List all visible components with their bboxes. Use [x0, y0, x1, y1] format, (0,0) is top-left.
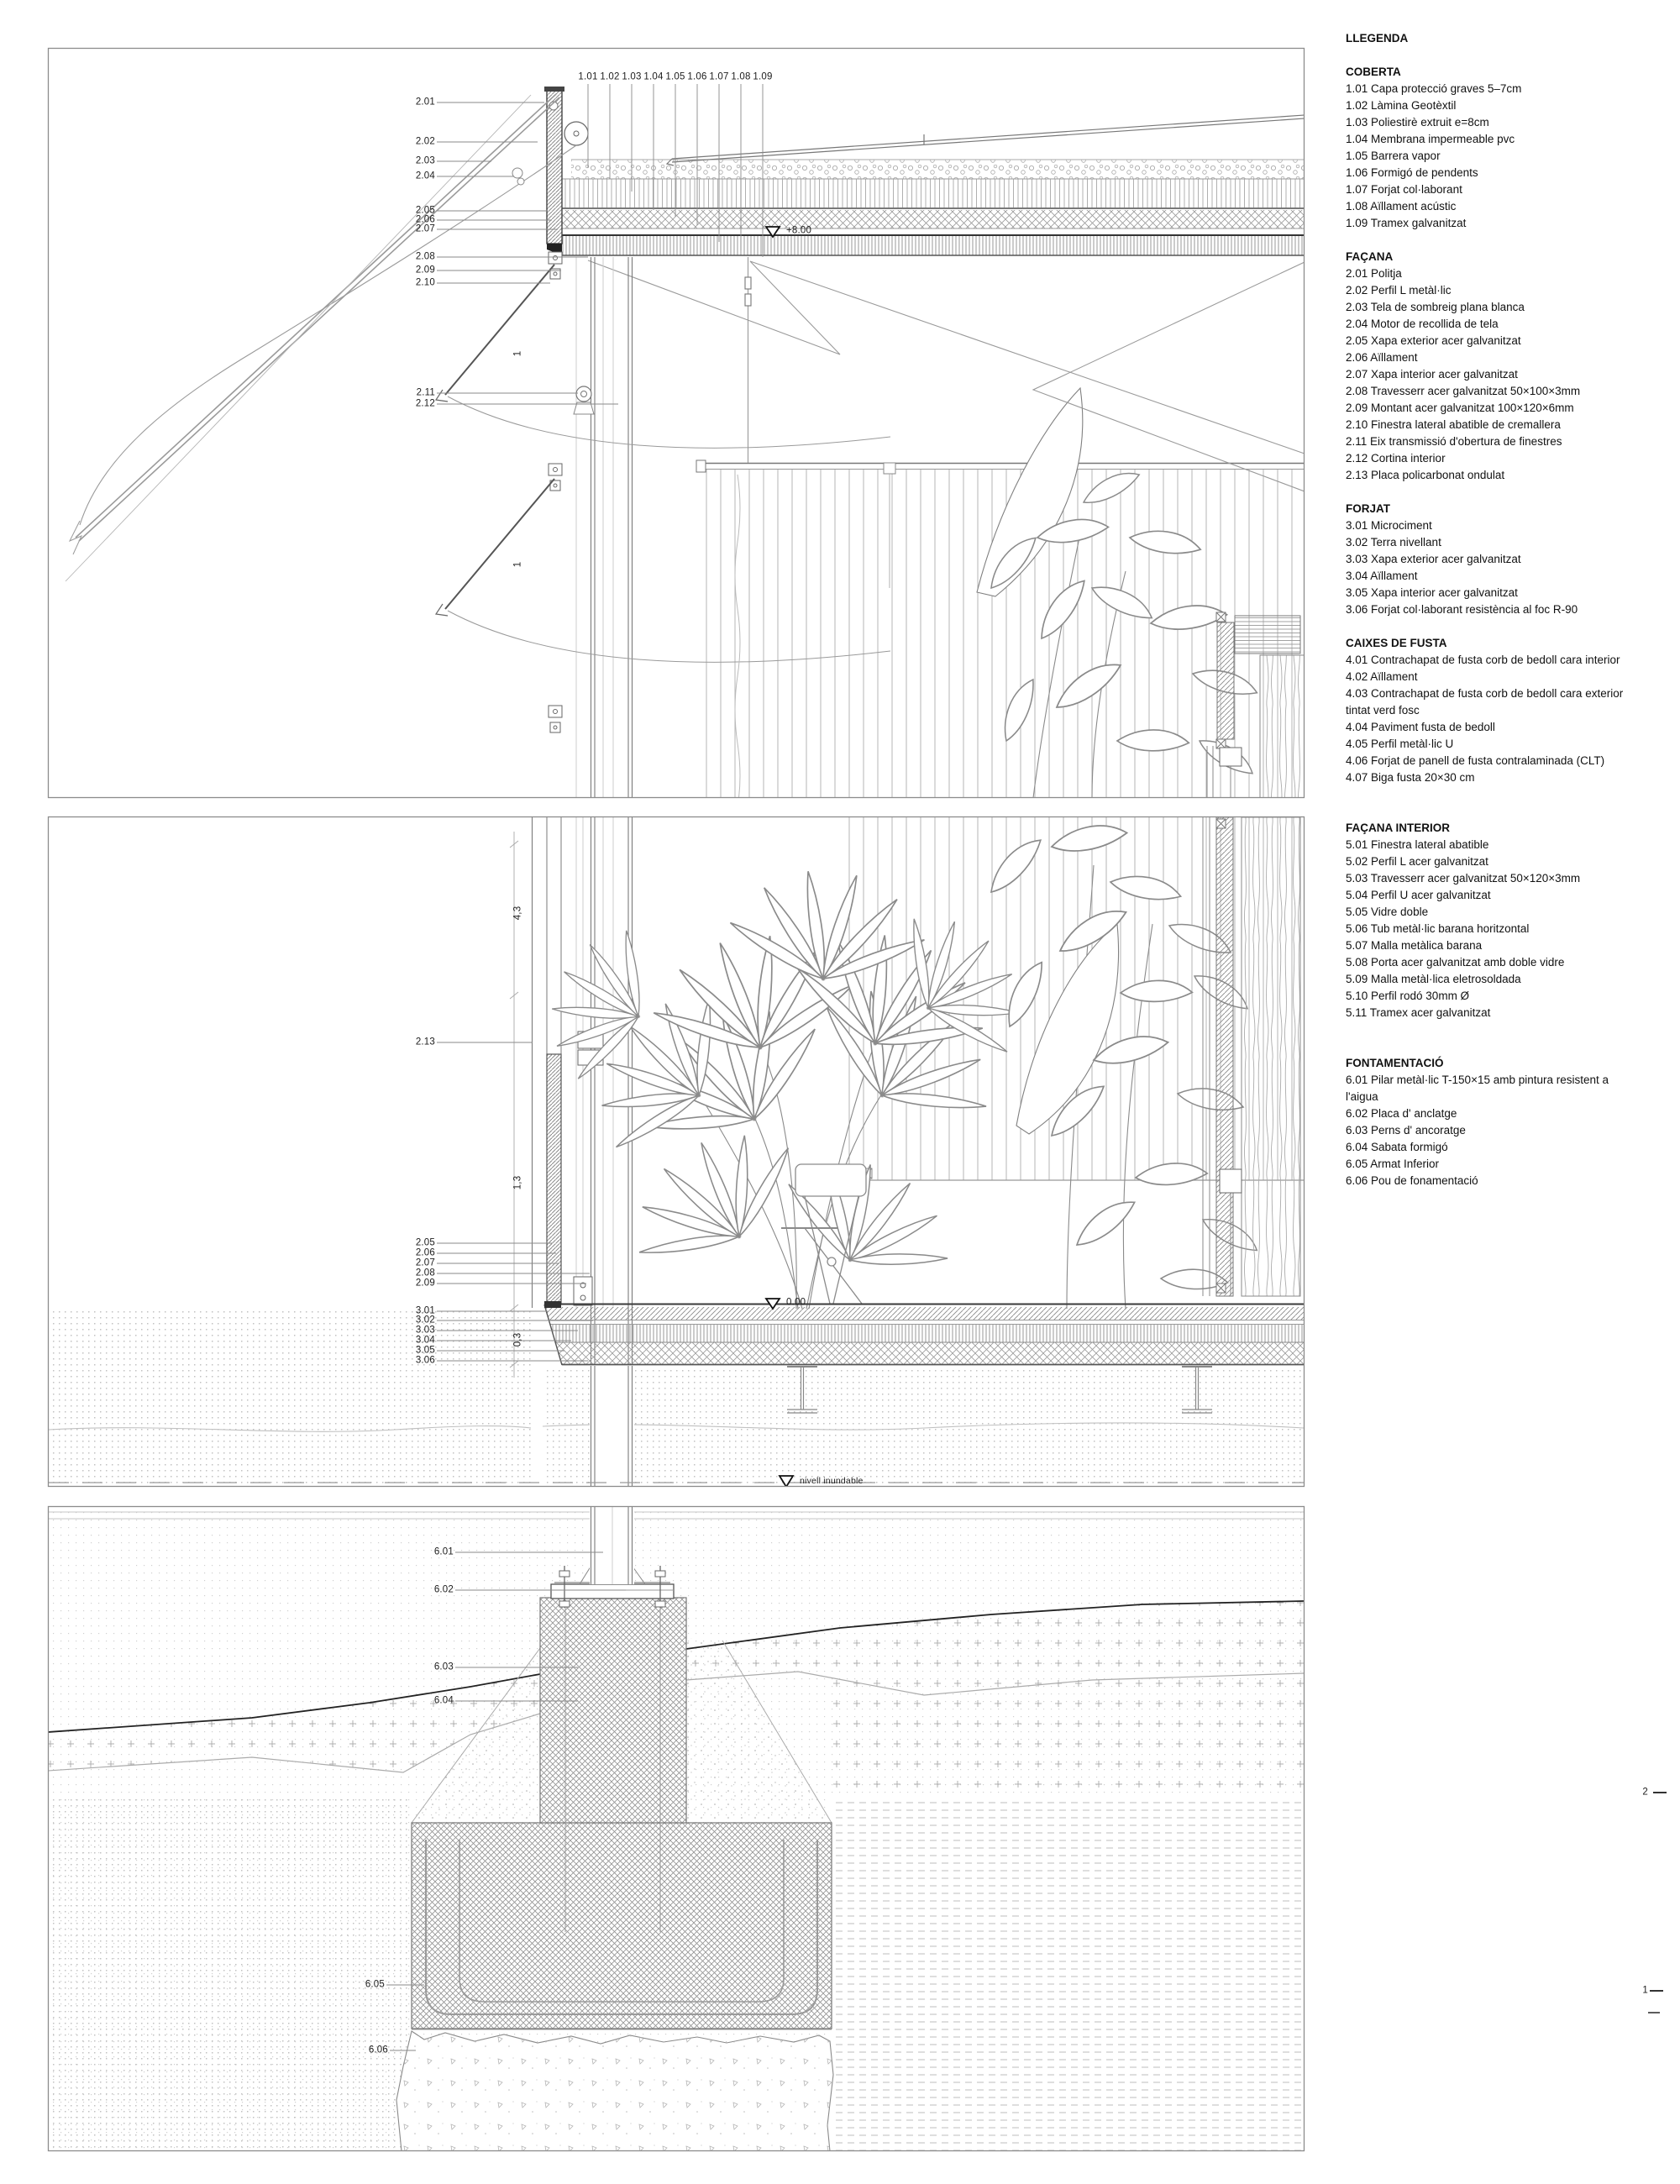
- legend-item: 1.09 Tramex galvanitzat: [1346, 215, 1638, 232]
- callout-label: 2.01: [416, 97, 435, 108]
- legend-item: 5.03 Travesserr acer galvanitzat 50×120×…: [1346, 870, 1638, 887]
- legend-item: 6.01 Pilar metàl·lic T-150×15 amb pintur…: [1346, 1072, 1638, 1105]
- callout-label: 1.02: [600, 72, 619, 82]
- callout-label: 6.03: [434, 1662, 454, 1672]
- callout-label: 2.09: [416, 265, 435, 276]
- callout-label: 1.06: [687, 72, 706, 82]
- legend-item: 1.05 Barrera vapor: [1346, 148, 1638, 165]
- legend-item: 2.10 Finestra lateral abatible de cremal…: [1346, 417, 1638, 433]
- panel-interior-section: [49, 817, 1305, 1487]
- callout-label: 2.11: [417, 388, 435, 398]
- legend-item: 2.03 Tela de sombreig plana blanca: [1346, 299, 1638, 316]
- callout-label: 6.05: [365, 1980, 385, 1990]
- legend-item: 2.06 Aïllament: [1346, 349, 1638, 366]
- legend-section-heading: CAIXES DE FUSTA: [1346, 635, 1638, 652]
- legend-item: 5.05 Vidre doble: [1346, 904, 1638, 921]
- callout-label: 1: [1642, 1986, 1648, 1996]
- legend-item: 6.03 Perns d' ancoratge: [1346, 1122, 1638, 1139]
- callout-label: 2.04: [416, 171, 435, 181]
- panel-roof-section: [66, 84, 1305, 806]
- legend-item: 4.02 Aïllament: [1346, 669, 1638, 685]
- callout-label: 4,3: [513, 906, 523, 921]
- legend-section-heading: FORJAT: [1346, 501, 1638, 517]
- callout-label: 1.04: [643, 72, 663, 82]
- legend-section-heading: FAÇANA: [1346, 249, 1638, 265]
- callout-label: 2.09: [416, 1278, 435, 1289]
- callout-label: 1.07: [709, 72, 728, 82]
- legend-item: 2.11 Eix transmissió d'obertura de fines…: [1346, 433, 1638, 450]
- callout-label: 6.02: [434, 1585, 454, 1595]
- legend-item: 1.02 Làmina Geotèxtil: [1346, 97, 1638, 114]
- callout-label: 3.02: [416, 1315, 435, 1326]
- callout-label: 3.06: [416, 1356, 435, 1366]
- legend-item: 5.06 Tub metàl·lic barana horitzontal: [1346, 921, 1638, 937]
- callout-label: 1.01: [578, 72, 597, 82]
- legend-sections: COBERTA1.01 Capa protecció graves 5–7cm1…: [1346, 64, 1638, 1189]
- legend-item: 6.02 Placa d' anclatge: [1346, 1105, 1638, 1122]
- legend-item: 4.06 Forjat de panell de fusta contralam…: [1346, 753, 1638, 769]
- legend-item: 1.01 Capa protecció graves 5–7cm: [1346, 81, 1638, 97]
- legend-item: 2.08 Travesserr acer galvanitzat 50×100×…: [1346, 383, 1638, 400]
- callout-label: 3.03: [416, 1326, 435, 1336]
- pier: [540, 1598, 686, 1823]
- legend-item: 2.02 Perfil L metàl·lic: [1346, 282, 1638, 299]
- callout-label: 2.07: [416, 1258, 435, 1268]
- legend-item: 1.03 Poliestirè extruit e=8cm: [1346, 114, 1638, 131]
- legend-item: 3.05 Xapa interior acer galvanitzat: [1346, 585, 1638, 601]
- legend-item: 3.04 Aïllament: [1346, 568, 1638, 585]
- callout-label: 3.04: [416, 1336, 435, 1346]
- callout-label: 3.05: [416, 1346, 435, 1356]
- legend-item: 3.03 Xapa exterior acer galvanitzat: [1346, 551, 1638, 568]
- callout-label: 2.08: [416, 1268, 435, 1278]
- legend-section-heading: COBERTA: [1346, 64, 1638, 81]
- sheet-reference-marks: [1648, 1793, 1667, 2013]
- legend-item: 3.06 Forjat col·laborant resistència al …: [1346, 601, 1638, 618]
- legend-item: 2.05 Xapa exterior acer galvanitzat: [1346, 333, 1638, 349]
- callout-label: 1.03: [622, 72, 641, 82]
- legend-item: 6.05 Armat Inferior: [1346, 1156, 1638, 1173]
- callout-label: 1: [513, 351, 523, 357]
- legend-item: 1.04 Membrana impermeable pvc: [1346, 131, 1638, 148]
- wood-box-detail-mid: [1203, 817, 1300, 1296]
- callout-label: 2.13: [416, 1037, 435, 1047]
- callout-label: nivell inundable: [800, 1477, 864, 1486]
- legend-item: 5.02 Perfil L acer galvanitzat: [1346, 853, 1638, 870]
- callout-label: 6.01: [434, 1547, 454, 1557]
- legend-item: 2.12 Cortina interior: [1346, 450, 1638, 467]
- legend-item: 3.01 Microciment: [1346, 517, 1638, 534]
- roof-layers: [562, 115, 1305, 255]
- callout-label: 2.06: [416, 1248, 435, 1258]
- legend-item: 5.10 Perfil rodó 30mm Ø: [1346, 988, 1638, 1005]
- interior-facade-lines: [533, 817, 633, 1364]
- callout-label: 2.02: [416, 137, 435, 147]
- legend: LLEGENDA COBERTA1.01 Capa protecció grav…: [1346, 30, 1638, 1189]
- floor-slab: [544, 1307, 1305, 1364]
- legend-section: FORJAT3.01 Microciment3.02 Terra nivella…: [1346, 501, 1638, 618]
- legend-title: LLEGENDA: [1346, 30, 1638, 47]
- callout-label: 2.08: [416, 252, 435, 262]
- legend-item: 5.04 Perfil U acer galvanitzat: [1346, 887, 1638, 904]
- steel-pillar-top: [576, 257, 633, 798]
- callout-label: 6.04: [434, 1696, 454, 1706]
- legend-item: 5.09 Malla metàl·lica eletrosoldada: [1346, 971, 1638, 988]
- legend-item: 5.07 Malla metàlica barana: [1346, 937, 1638, 954]
- callout-label: 2: [1642, 1788, 1648, 1798]
- legend-section: CAIXES DE FUSTA4.01 Contrachapat de fust…: [1346, 635, 1638, 786]
- callout-label: 1.09: [753, 72, 772, 82]
- callout-label: 1.08: [731, 72, 750, 82]
- legend-item: 1.07 Forjat col·laborant: [1346, 181, 1638, 198]
- callout-label: 2.12: [416, 399, 435, 409]
- legend-item: 2.01 Politja: [1346, 265, 1638, 282]
- legend-item: 2.07 Xapa interior acer galvanitzat: [1346, 366, 1638, 383]
- legend-section: COBERTA1.01 Capa protecció graves 5–7cm1…: [1346, 64, 1638, 232]
- shading-fabric: [66, 94, 576, 581]
- legend-item: 3.02 Terra nivellant: [1346, 534, 1638, 551]
- callout-label: 6.06: [369, 2045, 388, 2055]
- callout-label: 0.00: [786, 1298, 806, 1308]
- callout-label: 2.05: [416, 1238, 435, 1248]
- callout-label: 1: [513, 562, 523, 568]
- legend-section: FAÇANA2.01 Politja2.02 Perfil L metàl·li…: [1346, 249, 1638, 484]
- legend-section-heading: FONTAMENTACIÓ: [1346, 1055, 1638, 1072]
- legend-item: 5.08 Porta acer galvanitzat amb doble vi…: [1346, 954, 1638, 971]
- legend-section: FAÇANA INTERIOR5.01 Finestra lateral aba…: [1346, 820, 1638, 1021]
- callout-label: 2.07: [416, 224, 435, 234]
- callout-label: 2.03: [416, 156, 435, 166]
- legend-item: 2.09 Montant acer galvanitzat 100×120×6m…: [1346, 400, 1638, 417]
- panel-foundation-section: [48, 1507, 1305, 2151]
- callout-label: 1,3: [513, 1176, 523, 1190]
- legend-item: 5.01 Finestra lateral abatible: [1346, 837, 1638, 853]
- roof-truss: [588, 257, 1305, 491]
- legend-item: 1.08 Aïllament acústic: [1346, 198, 1638, 215]
- legend-item: 4.05 Perfil metàl·lic U: [1346, 736, 1638, 753]
- callout-label: 1.05: [665, 72, 685, 82]
- legend-item: 6.06 Pou de fonamentació: [1346, 1173, 1638, 1189]
- legend-item: 6.04 Sabata formigó: [1346, 1139, 1638, 1156]
- callout-label: 2.10: [416, 278, 435, 288]
- legend-item: 4.03 Contrachapat de fusta corb de bedol…: [1346, 685, 1638, 719]
- legend-item: 5.11 Tramex acer galvanitzat: [1346, 1005, 1638, 1021]
- footing: [412, 1823, 832, 2029]
- legend-item: 2.13 Placa policarbonat ondulat: [1346, 467, 1638, 484]
- legend-item: 4.01 Contrachapat de fusta corb de bedol…: [1346, 652, 1638, 669]
- legend-section-heading: FAÇANA INTERIOR: [1346, 820, 1638, 837]
- drawing-sheet: 1.011.021.031.041.051.061.071.081.092.01…: [0, 0, 1680, 2184]
- callout-label: +8.00: [786, 226, 811, 236]
- legend-item: 1.06 Formigó de pendents: [1346, 165, 1638, 181]
- legend-item: 2.04 Motor de recollida de tela: [1346, 316, 1638, 333]
- legend-section: FONTAMENTACIÓ6.01 Pilar metàl·lic T-150×…: [1346, 1055, 1638, 1189]
- callout-label: 0,3: [513, 1333, 523, 1347]
- legend-item: 4.04 Paviment fusta de bedoll: [1346, 719, 1638, 736]
- legend-item: 4.07 Biga fusta 20×30 cm: [1346, 769, 1638, 786]
